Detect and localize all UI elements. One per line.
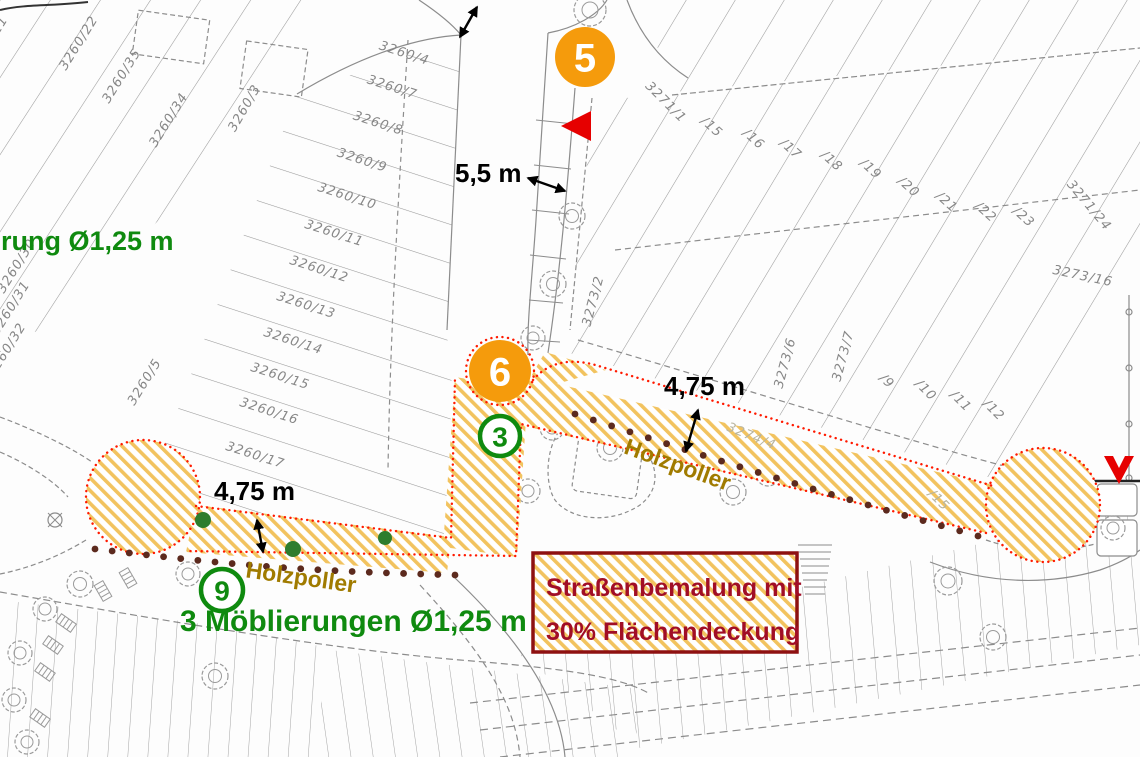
measurement-4-75m-right: 4,75 m [664, 371, 745, 401]
marker-3-label: 3 [492, 421, 508, 452]
holzpoller-dot [736, 463, 743, 470]
holzpoller-dot [718, 458, 725, 465]
holzpoller-dot [177, 555, 184, 562]
holzpoller-dot [383, 569, 390, 576]
holzpoller-dot [366, 569, 373, 576]
marker-9-label: 9 [214, 575, 230, 606]
holzpoller-dot [229, 560, 236, 567]
holzpoller-dot [608, 423, 615, 430]
holzpoller-dot [901, 512, 908, 519]
note-moeblierung-left: rung Ø1,25 m [1, 226, 174, 256]
holzpoller-dot [400, 570, 407, 577]
holzpoller-dot [590, 417, 597, 424]
measurement-5-5m: 5,5 m [455, 158, 522, 188]
holzpoller-dot [883, 507, 890, 514]
holzpoller-dot [92, 546, 99, 553]
holzpoller-dot [572, 411, 579, 418]
furnishing-dot [195, 512, 211, 528]
furnishing-dot [378, 531, 392, 545]
marker-6-label: 6 [489, 350, 511, 394]
site-plan: 3260/43260/73260/83260/93260/103260/1132… [0, 0, 1140, 757]
holzpoller-dot [143, 551, 150, 558]
legend-line-1: Straßenbemalung mit [546, 574, 802, 602]
furnishing-dot [285, 541, 301, 557]
holzpoller-dot [773, 475, 780, 482]
holzpoller-dot [109, 548, 116, 555]
holzpoller-dot [126, 550, 133, 557]
holzpoller-dot [865, 502, 872, 509]
marker-5-label: 5 [574, 36, 596, 80]
holzpoller-dot [417, 571, 424, 578]
legend-line-2: 30% Flächendeckung [546, 618, 800, 646]
holzpoller-dot [975, 533, 982, 540]
holzpoller-dot [938, 522, 945, 529]
holzpoller-dot [755, 469, 762, 476]
holzpoller-dot [212, 559, 219, 566]
holzpoller-dot [791, 480, 798, 487]
legend-box: Straßenbemalung mit 30% Flächendeckung [533, 553, 802, 652]
holzpoller-dot [452, 572, 459, 579]
holzpoller-dot [920, 517, 927, 524]
holzpoller-dot [846, 496, 853, 503]
map-canvas: 3260/43260/73260/83260/93260/103260/1132… [0, 0, 1140, 757]
holzpoller-dot [434, 571, 441, 578]
holzpoller-dot [700, 452, 707, 459]
measurement-4-75m-left: 4,75 m [214, 476, 295, 506]
holzpoller-dot [828, 491, 835, 498]
holzpoller-dot [160, 553, 167, 560]
holzpoller-dot [956, 527, 963, 534]
holzpoller-dot [810, 486, 817, 493]
holzpoller-dot [194, 557, 201, 564]
